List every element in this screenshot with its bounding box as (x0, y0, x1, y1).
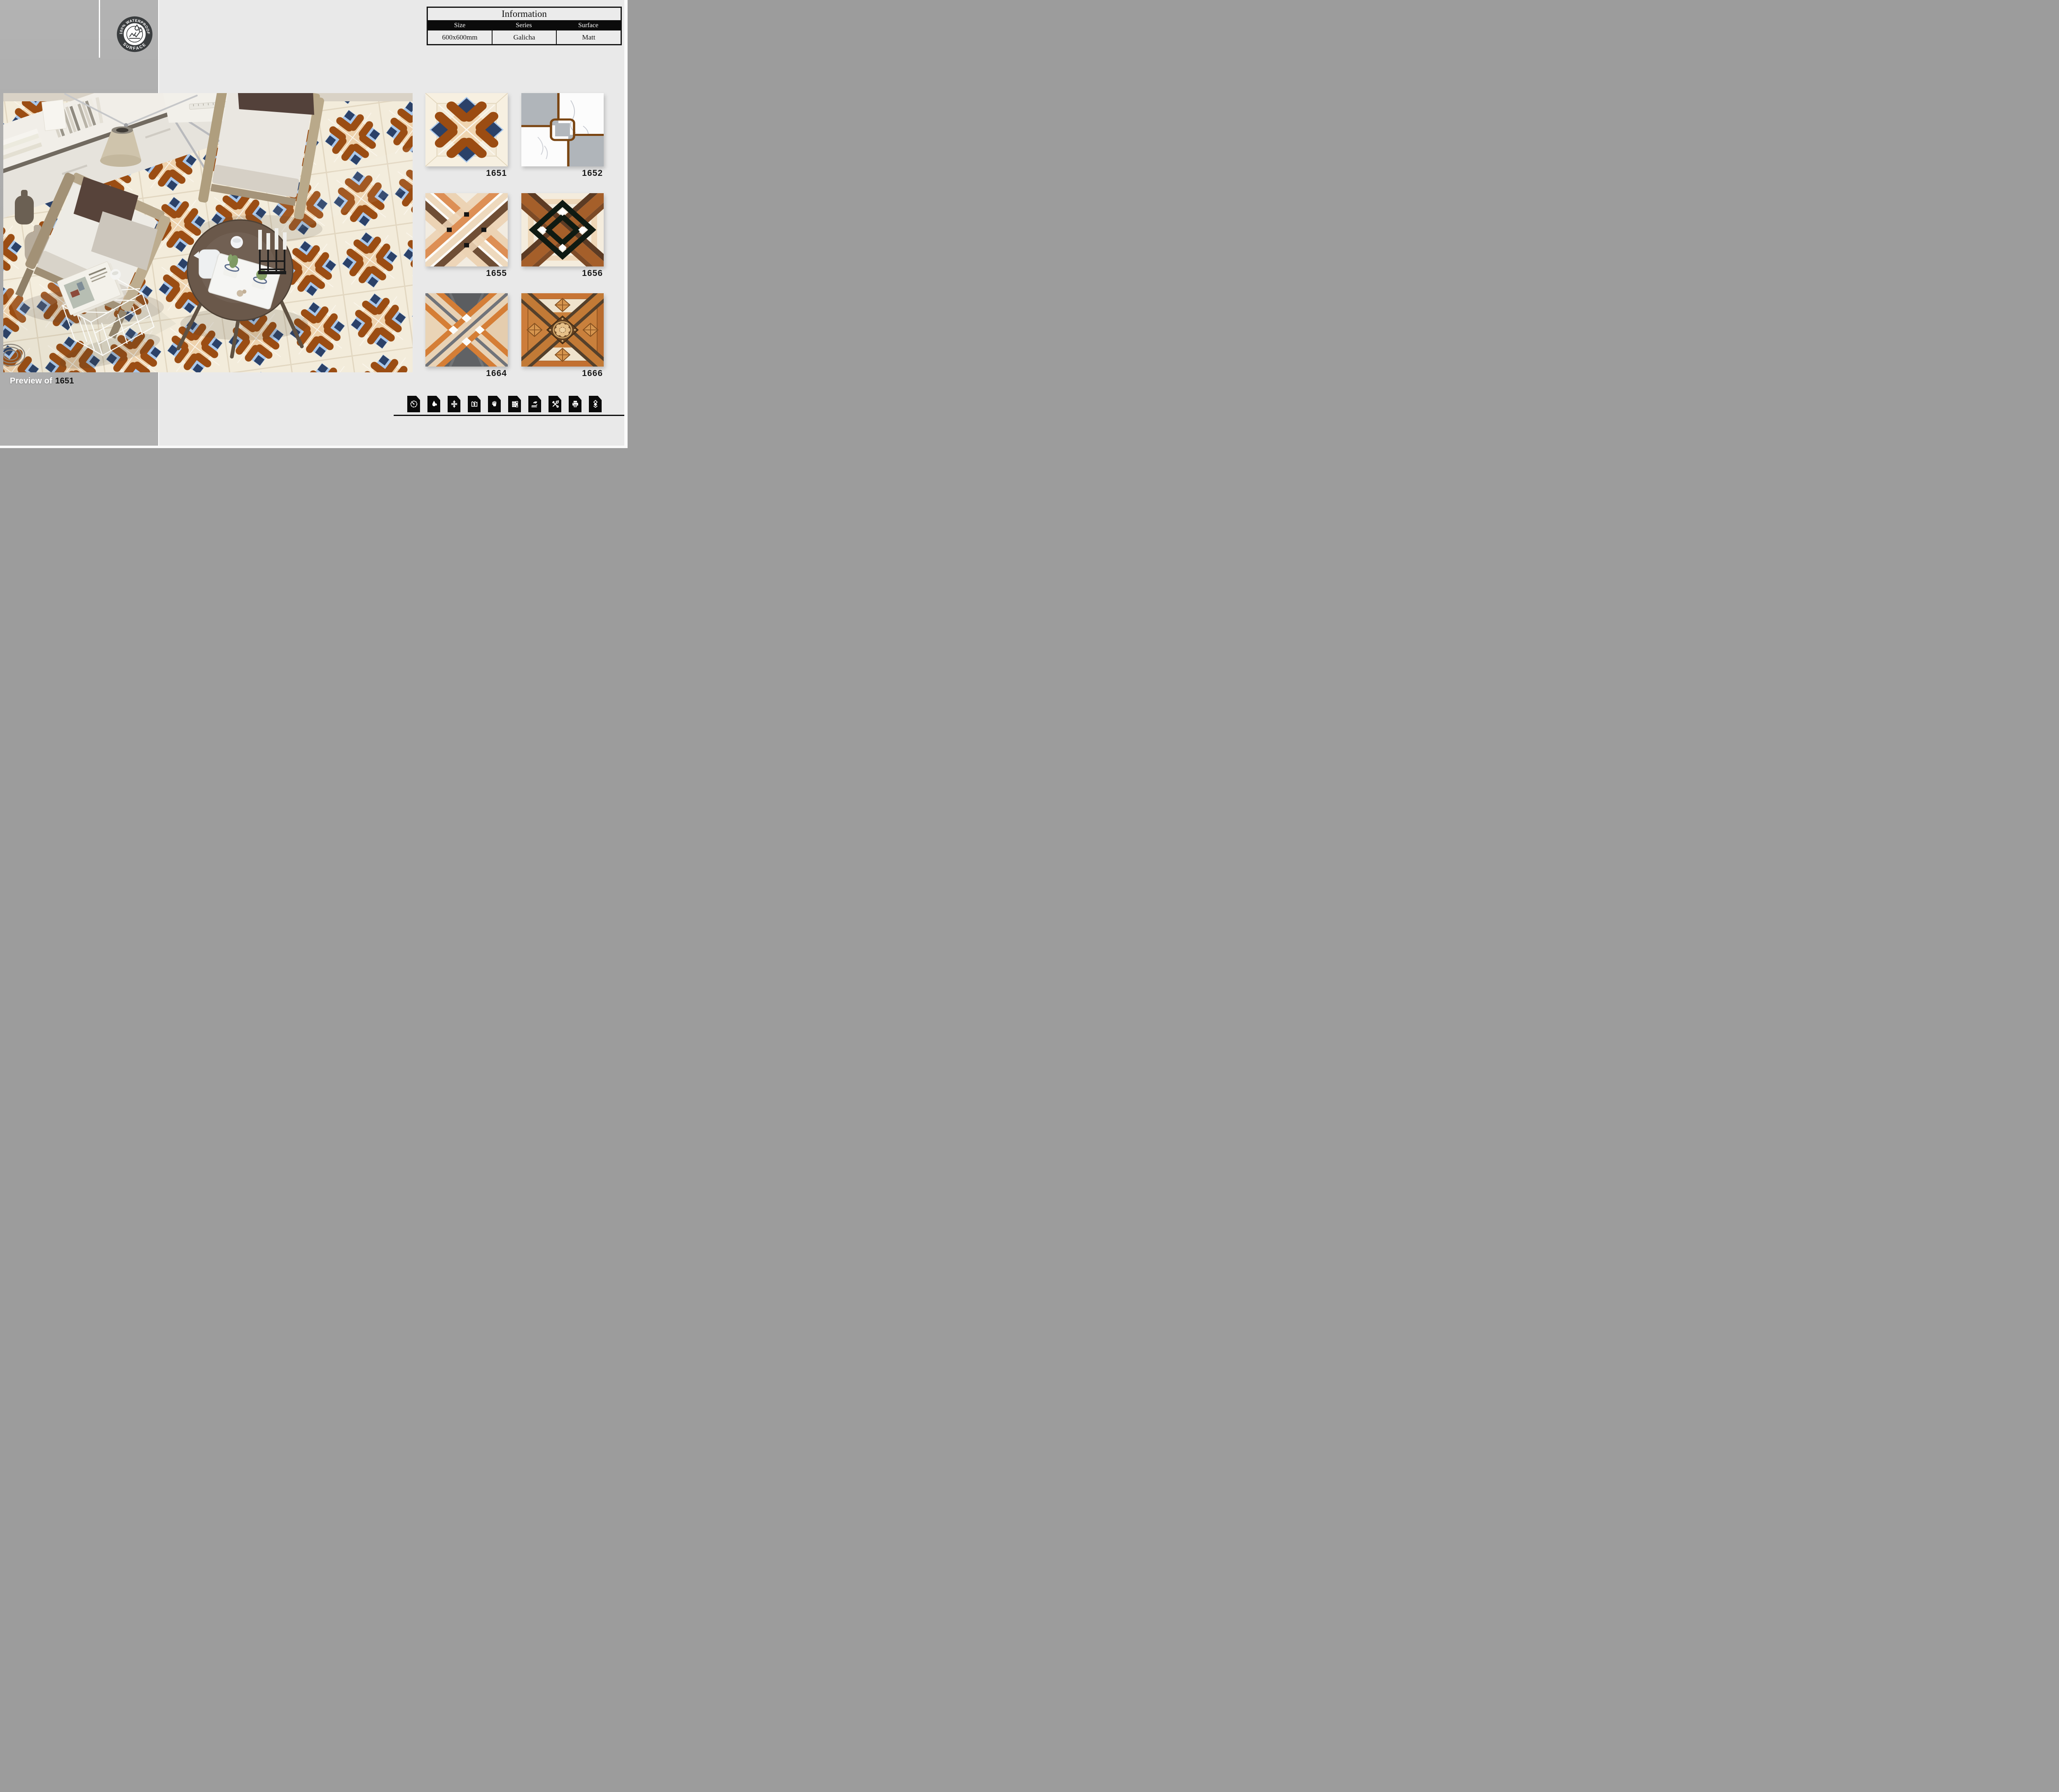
header-surface: Surface (556, 20, 621, 30)
tools-icon (549, 396, 561, 412)
wear-gauge-icon (407, 396, 420, 412)
waterproof-badge-graphic: 100% WATERPROOF SURFACE (116, 15, 154, 53)
header-series: Series (492, 20, 556, 30)
leaning-book (42, 100, 66, 131)
tile-label: 1656 (521, 269, 604, 278)
tile-label: 1666 (521, 369, 604, 378)
hand-icon (488, 396, 501, 412)
room-preview-image (3, 93, 413, 372)
stacked-tiles-icon (589, 396, 602, 412)
tile-grid-icon (508, 396, 521, 412)
tile-swatch-grid: 1651 1652 (425, 93, 607, 381)
tile-image-1651[interactable] (425, 93, 508, 166)
thickness-measure-icon (468, 396, 481, 412)
tile-image-1666[interactable] (521, 293, 604, 367)
information-table-title: Information (428, 8, 621, 20)
tile-image-1664[interactable] (425, 293, 508, 367)
tile-swatch-1651[interactable]: 1651 (425, 93, 508, 178)
vertical-accent-line (99, 0, 100, 58)
tile-swatch-1655[interactable]: 1655 (425, 193, 508, 278)
information-table-header: Size Series Surface (428, 20, 621, 30)
bottom-rule-line (394, 415, 624, 416)
tile-swatch-1652[interactable]: 1652 (521, 93, 604, 178)
preview-caption-tile-number: 1651 (55, 376, 74, 386)
tile-label: 1664 (425, 369, 508, 378)
tile-swatch-1656[interactable]: 1656 (521, 193, 604, 278)
tile-label: 1652 (521, 168, 604, 178)
tile-label: 1655 (425, 269, 508, 278)
water-drop-icon (427, 396, 440, 412)
preview-caption: Preview of1651 (10, 376, 74, 386)
tile-label: 1651 (425, 168, 508, 178)
compression-arrows-icon (448, 396, 460, 412)
value-size: 600x600mm (428, 30, 492, 44)
tile-image-1655[interactable] (425, 193, 508, 266)
printer-icon (569, 396, 581, 412)
value-series: Galicha (492, 30, 556, 44)
preview-caption-prefix: Preview of (10, 376, 52, 386)
tile-image-1652[interactable] (521, 93, 604, 166)
tile-image-1656[interactable] (521, 193, 604, 266)
page-right-edge (624, 0, 628, 448)
feature-icons-row (407, 396, 602, 412)
value-surface: Matt (556, 30, 621, 44)
tile-swatch-1666[interactable]: 1666 (521, 293, 604, 378)
waterproof-badge: 100% WATERPROOF SURFACE (116, 15, 154, 53)
information-table-row: 600x600mm Galicha Matt (428, 30, 621, 44)
page-bottom-edge (0, 446, 628, 448)
tile-swatch-1664[interactable]: 1664 (425, 293, 508, 378)
header-size: Size (428, 20, 492, 30)
information-table: Information Size Series Surface 600x600m… (427, 7, 622, 45)
eco-hand-leaf-icon (528, 396, 541, 412)
catalog-page: 100% WATERPROOF SURFACE Information Size… (0, 0, 628, 448)
